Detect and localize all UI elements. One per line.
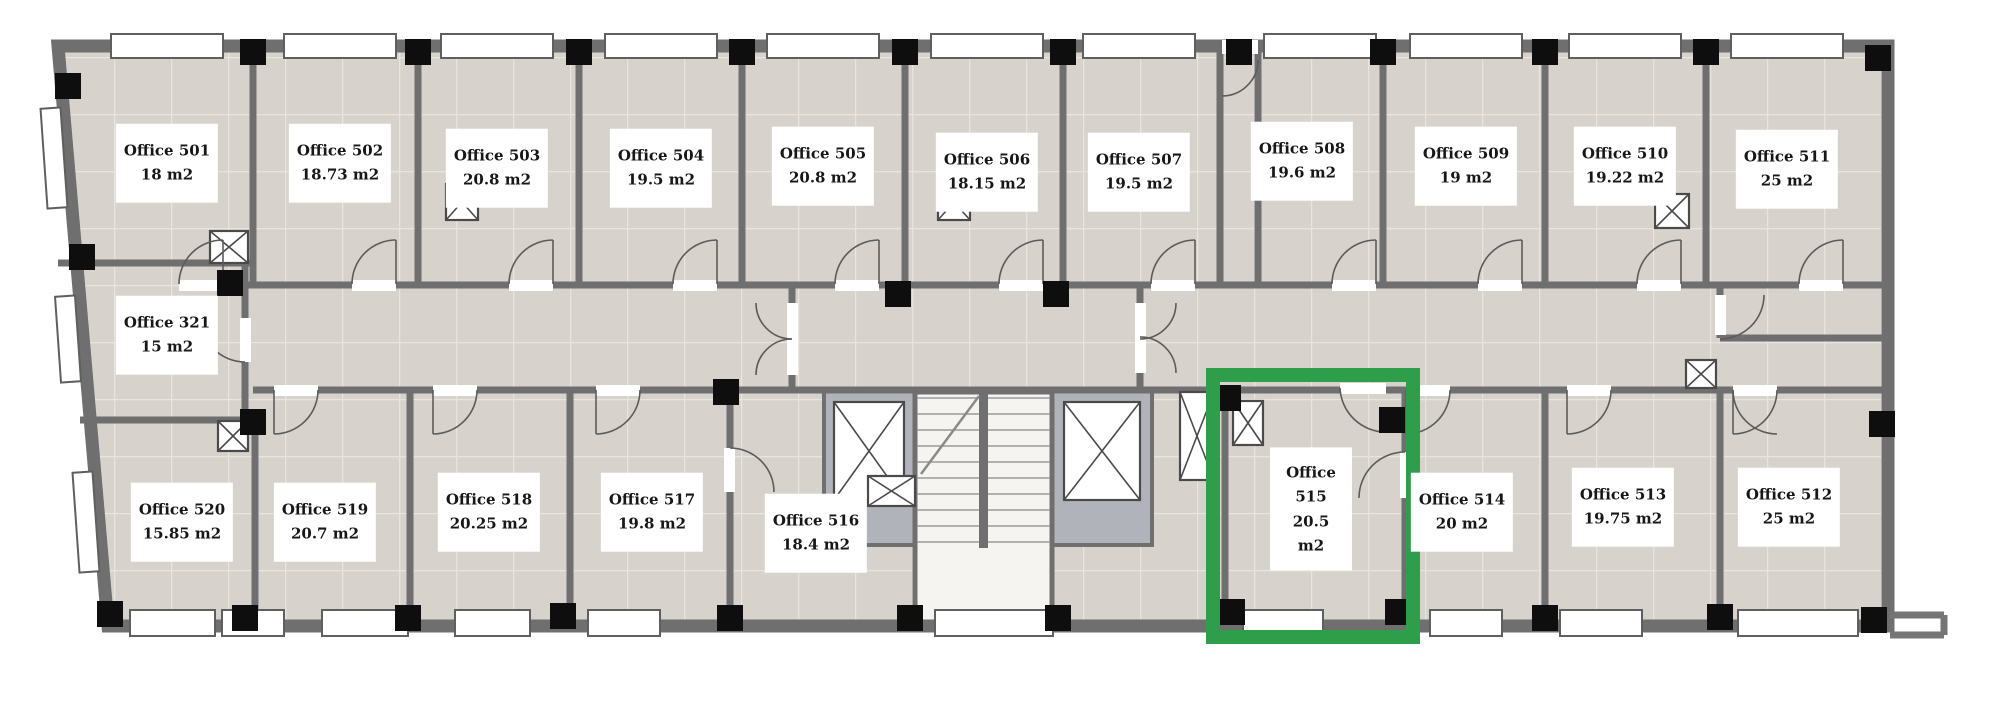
room-area: 19 m2 (1423, 166, 1509, 190)
room-name: Office 503 (454, 144, 540, 168)
column (1045, 605, 1071, 631)
room-name: Office 321 (124, 311, 210, 335)
room-area: 19.75 m2 (1580, 507, 1666, 531)
room-label-office-501[interactable]: Office 50118 m2 (116, 124, 218, 203)
room-label-office-513[interactable]: Office 51319.75 m2 (1572, 468, 1674, 547)
window (284, 34, 396, 58)
room-label-office-505[interactable]: Office 50520.8 m2 (772, 127, 874, 206)
room-label-office-512[interactable]: Office 51225 m2 (1738, 468, 1840, 547)
column (550, 603, 576, 629)
column (1532, 605, 1558, 631)
room-label-office-508[interactable]: Office 50819.6 m2 (1251, 122, 1353, 201)
column (729, 39, 755, 65)
room-name: Office 518 (446, 488, 532, 512)
room-area: 15 m2 (124, 335, 210, 359)
column (1707, 604, 1733, 630)
room-label-office-519[interactable]: Office 51920.7 m2 (274, 483, 376, 562)
room-name: Office 512 (1746, 483, 1832, 507)
column (892, 39, 918, 65)
room-label-office-515[interactable]: Office 51520.5 m2 (1270, 447, 1352, 570)
door-opening (1567, 385, 1611, 396)
room-name: Office 504 (618, 144, 704, 168)
window (931, 34, 1043, 58)
column (1869, 411, 1895, 437)
column (713, 379, 739, 405)
door-opening (352, 280, 396, 291)
floor-plan-drawing (0, 0, 2000, 706)
room-area: 19.22 m2 (1582, 166, 1668, 190)
room-label-office-321[interactable]: Office 32115 m2 (116, 296, 218, 375)
exterior-wall-stub (1890, 615, 1944, 635)
window (1083, 34, 1195, 58)
door-opening (179, 280, 223, 291)
window (441, 34, 553, 58)
column (1043, 281, 1069, 307)
room-area: 19.8 m2 (609, 512, 695, 536)
column (1865, 45, 1891, 71)
door-opening (596, 385, 640, 396)
room-label-office-506[interactable]: Office 50618.15 m2 (936, 133, 1038, 212)
window (455, 610, 530, 636)
room-name: Office 506 (944, 148, 1030, 172)
window (111, 34, 223, 58)
column (395, 605, 421, 631)
column (232, 605, 258, 631)
door-opening (1737, 385, 1777, 396)
column (240, 409, 266, 435)
column (1532, 39, 1558, 65)
door-opening (433, 385, 477, 396)
room-name: Office 509 (1423, 142, 1509, 166)
room-label-office-514[interactable]: Office 51420 m2 (1411, 473, 1513, 552)
column (566, 39, 592, 65)
room-name: Office 510 (1582, 142, 1668, 166)
column (240, 39, 266, 65)
door-opening (999, 280, 1043, 291)
room-name: Office 519 (282, 498, 368, 522)
window (1410, 34, 1522, 58)
shaft-icon (868, 476, 915, 506)
column (1693, 39, 1719, 65)
window (1264, 34, 1376, 58)
room-label-office-507[interactable]: Office 50719.5 m2 (1088, 133, 1190, 212)
room-area: 19.5 m2 (618, 168, 704, 192)
room-area: 18 m2 (124, 163, 210, 187)
staircase (915, 392, 1052, 622)
room-label-office-511[interactable]: Office 51125 m2 (1736, 130, 1838, 209)
room-area: 25 m2 (1746, 507, 1832, 531)
room-label-office-503[interactable]: Office 50320.8 m2 (446, 129, 548, 208)
room-label-office-502[interactable]: Office 50218.73 m2 (289, 124, 391, 203)
door-opening (274, 385, 318, 396)
shaft-icon (1686, 360, 1716, 388)
door-opening (835, 280, 879, 291)
room-name: Office 508 (1259, 137, 1345, 161)
room-area: 20.5 m2 (1278, 509, 1344, 558)
column (1379, 407, 1405, 433)
room-label-office-517[interactable]: Office 51719.8 m2 (601, 473, 703, 552)
window (588, 610, 660, 636)
window (1430, 610, 1502, 636)
door-opening (240, 318, 251, 362)
room-label-office-504[interactable]: Office 50419.5 m2 (610, 129, 712, 208)
room-area: 20.25 m2 (446, 512, 532, 536)
room-name: Office 520 (139, 498, 225, 522)
column (405, 39, 431, 65)
door-opening (724, 448, 735, 492)
column (97, 601, 123, 627)
room-name: Office 515 (1278, 460, 1344, 509)
room-area: 18.4 m2 (773, 533, 859, 557)
room-area: 19.6 m2 (1259, 161, 1345, 185)
door-opening (1637, 280, 1681, 291)
window (767, 34, 879, 58)
room-label-office-509[interactable]: Office 50919 m2 (1415, 127, 1517, 206)
room-name: Office 513 (1580, 483, 1666, 507)
elevator-shaft-icon (1064, 402, 1140, 500)
column (1050, 39, 1076, 65)
room-area: 18.15 m2 (944, 172, 1030, 196)
door-opening (1715, 295, 1726, 335)
column (885, 281, 911, 307)
door-opening (673, 280, 717, 291)
column (1370, 39, 1396, 65)
room-area: 20 m2 (1419, 512, 1505, 536)
room-name: Office 501 (124, 139, 210, 163)
window (1738, 610, 1858, 636)
room-area: 18.73 m2 (297, 163, 383, 187)
room-label-office-516[interactable]: Office 51618.4 m2 (765, 494, 867, 573)
room-name: Office 505 (780, 142, 866, 166)
room-name: Office 517 (609, 488, 695, 512)
room-label-office-510[interactable]: Office 51019.22 m2 (1574, 127, 1676, 206)
room-label-office-518[interactable]: Office 51820.25 m2 (438, 473, 540, 552)
window (130, 610, 215, 636)
shaft-icon (210, 231, 248, 263)
room-area: 20.7 m2 (282, 522, 368, 546)
column (55, 73, 81, 99)
column (1226, 39, 1252, 65)
door-opening (1151, 280, 1195, 291)
room-area: 15.85 m2 (139, 522, 225, 546)
window (1569, 34, 1681, 58)
room-area: 20.8 m2 (780, 166, 866, 190)
room-area: 20.8 m2 (454, 168, 540, 192)
column (1861, 607, 1887, 633)
column (897, 605, 923, 631)
column (69, 244, 95, 270)
door-opening (509, 280, 553, 291)
window (1560, 610, 1642, 636)
door-opening (1478, 280, 1522, 291)
window (935, 610, 1053, 636)
room-area: 19.5 m2 (1096, 172, 1182, 196)
room-area: 25 m2 (1744, 169, 1830, 193)
room-name: Office 511 (1744, 145, 1830, 169)
column (1219, 599, 1245, 625)
room-name: Office 514 (1419, 488, 1505, 512)
stair-divider (979, 392, 988, 548)
door-opening (1340, 383, 1386, 394)
door-opening (1799, 280, 1843, 291)
room-name: Office 516 (773, 509, 859, 533)
room-name: Office 502 (297, 139, 383, 163)
column (717, 605, 743, 631)
column (217, 270, 243, 296)
window (1731, 34, 1843, 58)
room-label-office-520[interactable]: Office 52015.85 m2 (131, 483, 233, 562)
window (605, 34, 717, 58)
room-name: Office 507 (1096, 148, 1182, 172)
floor-plan: Office 50118 m2Office 50218.73 m2Office … (0, 0, 2000, 706)
door-opening (1332, 280, 1376, 291)
